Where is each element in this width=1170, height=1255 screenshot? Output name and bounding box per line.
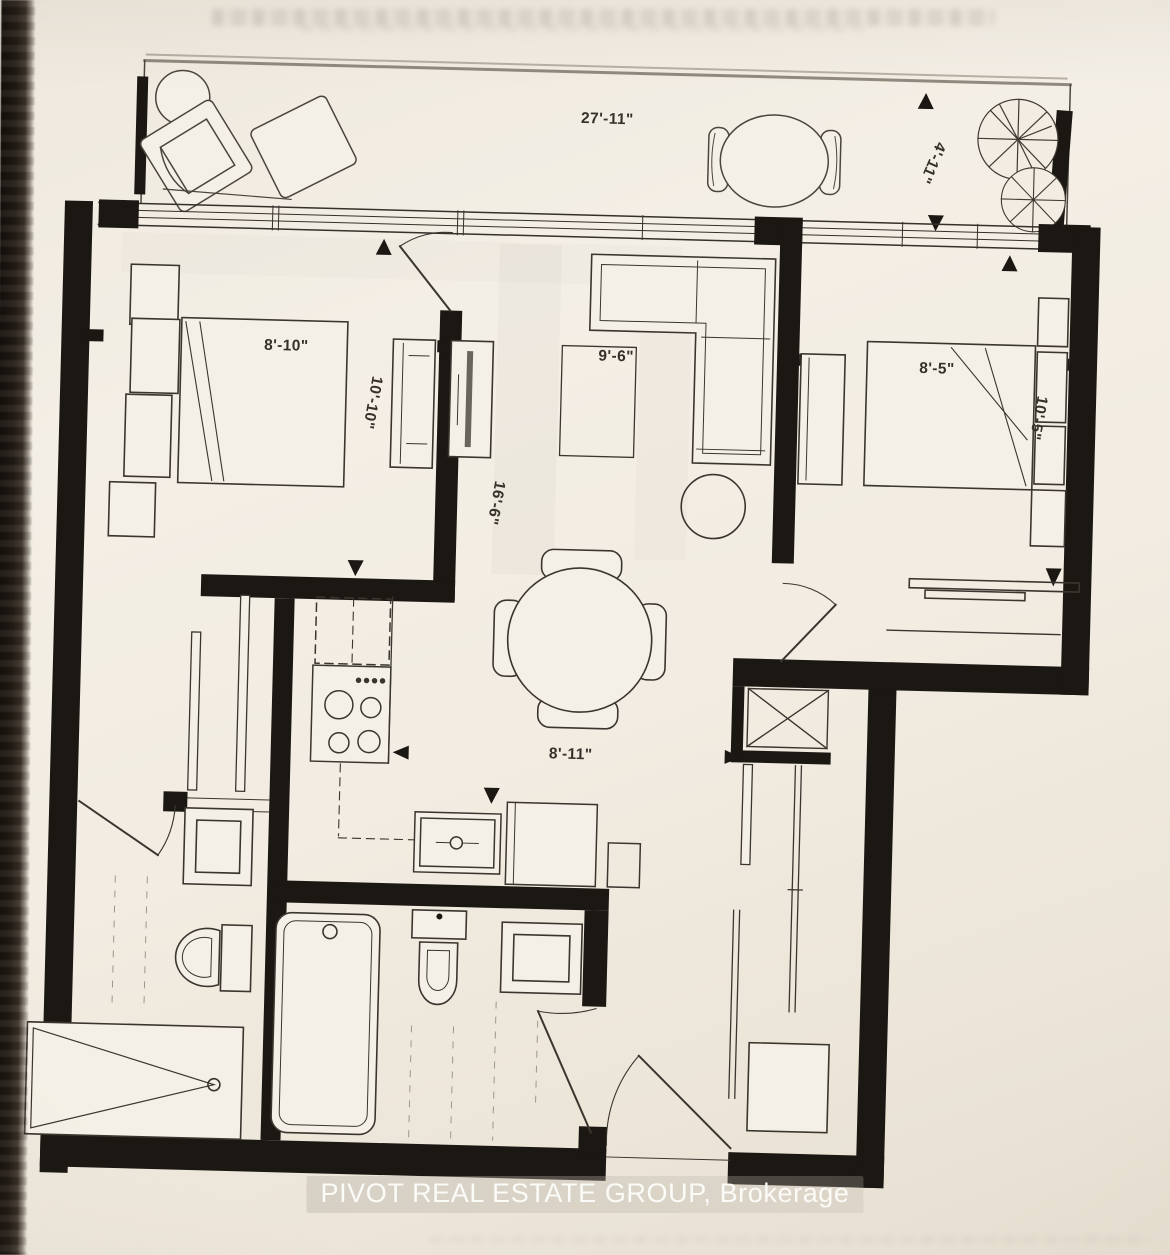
opening-arrow-down bbox=[347, 560, 363, 576]
headboard-cushion bbox=[124, 394, 172, 477]
dimension-arrow-up bbox=[918, 93, 934, 109]
tree-icon-small bbox=[1001, 167, 1067, 233]
kitchen-arrow-left bbox=[393, 745, 409, 759]
wall-living-bedroom2 bbox=[772, 219, 803, 563]
dimension-label-living-width: 9'-6" bbox=[598, 347, 634, 365]
headboard-cushion bbox=[1038, 298, 1069, 347]
dimension-label-kitchen-dining: 8'-11" bbox=[549, 745, 593, 763]
bedroom-1 bbox=[108, 264, 437, 544]
hall-closet-track bbox=[729, 910, 740, 1098]
kitchen-counter-2 bbox=[505, 802, 597, 886]
blurred-footer-smudge bbox=[430, 1236, 1150, 1243]
main-bathroom bbox=[271, 906, 583, 1142]
sliding-closet-panel bbox=[188, 632, 201, 790]
headboard-cushion bbox=[130, 318, 180, 393]
tv-console bbox=[448, 341, 493, 458]
shaft-wall-bottom bbox=[731, 750, 831, 765]
corridor-closets bbox=[187, 594, 275, 812]
hall-closet-track bbox=[785, 766, 805, 1012]
dining-area bbox=[491, 548, 668, 730]
dimension-label-bedroom1-width: 8'-10" bbox=[264, 337, 309, 355]
closet-arrow-down bbox=[1045, 568, 1061, 586]
wall-right-exterior bbox=[1060, 227, 1100, 696]
window-arrow bbox=[1001, 255, 1017, 271]
wall-bedroom1-bottom bbox=[201, 574, 455, 603]
bedroom1-wardrobe bbox=[390, 339, 435, 468]
ensuite-sink bbox=[183, 808, 253, 886]
dimension-label-bedroom1-length: 10'-10" bbox=[359, 375, 385, 431]
kitchen-arrow-down bbox=[483, 788, 499, 804]
balcony-left-wall-stub bbox=[134, 76, 148, 194]
utility-shaft bbox=[747, 689, 828, 749]
entry-hall bbox=[728, 764, 837, 1132]
wall-bottom-left bbox=[40, 1134, 607, 1181]
dimension-label-bedroom2-width: 8'-5" bbox=[919, 360, 955, 378]
bathroom-door bbox=[535, 1007, 596, 1132]
bedroom-2 bbox=[794, 292, 1087, 635]
wall-entry-right bbox=[855, 688, 896, 1189]
bath-door-jamb bbox=[578, 1126, 607, 1153]
bedroom2-door bbox=[781, 583, 836, 662]
dimension-arrow-down bbox=[928, 215, 944, 231]
wall-pier bbox=[98, 199, 139, 228]
floor-plan-drawing: 27'-11" 4'-11" 8'-10" 10'-10" 9'-6" 16'-… bbox=[0, 0, 1170, 1255]
tree-icon bbox=[977, 98, 1059, 180]
laundry-closet bbox=[747, 1043, 829, 1133]
watermark: PIVOT REAL ESTATE GROUP, Brokerage bbox=[306, 1176, 863, 1213]
bedroom2-closet bbox=[887, 578, 1079, 635]
headboard-cushion bbox=[130, 264, 180, 325]
entry-bench bbox=[607, 843, 640, 888]
bath-toilet bbox=[410, 910, 466, 1005]
dimension-label-balcony-depth: 4'-11" bbox=[916, 139, 949, 186]
dimension-label-balcony-width: 27'-11" bbox=[581, 110, 634, 128]
balcony-lounge-chair-2 bbox=[249, 94, 358, 199]
bathtub bbox=[271, 912, 381, 1135]
bedroom2-dresser bbox=[798, 354, 845, 485]
ensuite-toilet bbox=[175, 924, 252, 992]
wall-bath-right bbox=[582, 910, 609, 1007]
stove bbox=[310, 665, 390, 763]
kitchen-island-sink bbox=[414, 812, 502, 874]
bedroom2-bench bbox=[1030, 490, 1065, 547]
balcony-lounge-chair-1 bbox=[138, 98, 254, 214]
floor-plan-photo: 27'-11" 4'-11" 8'-10" 10'-10" 9'-6" 16'-… bbox=[0, 0, 1170, 1255]
sliding-closet-panel bbox=[236, 595, 250, 791]
bedroom1-bench bbox=[108, 482, 155, 537]
ensuite-door bbox=[78, 801, 175, 855]
shower bbox=[25, 1022, 244, 1140]
balcony-dining-table bbox=[707, 113, 841, 208]
dimension-tick bbox=[87, 329, 103, 341]
dining-table bbox=[506, 566, 654, 714]
entry-door bbox=[606, 1055, 733, 1160]
side-table-round bbox=[680, 474, 746, 540]
bath-sink bbox=[500, 922, 582, 994]
sliding-closet-panel bbox=[741, 764, 753, 864]
